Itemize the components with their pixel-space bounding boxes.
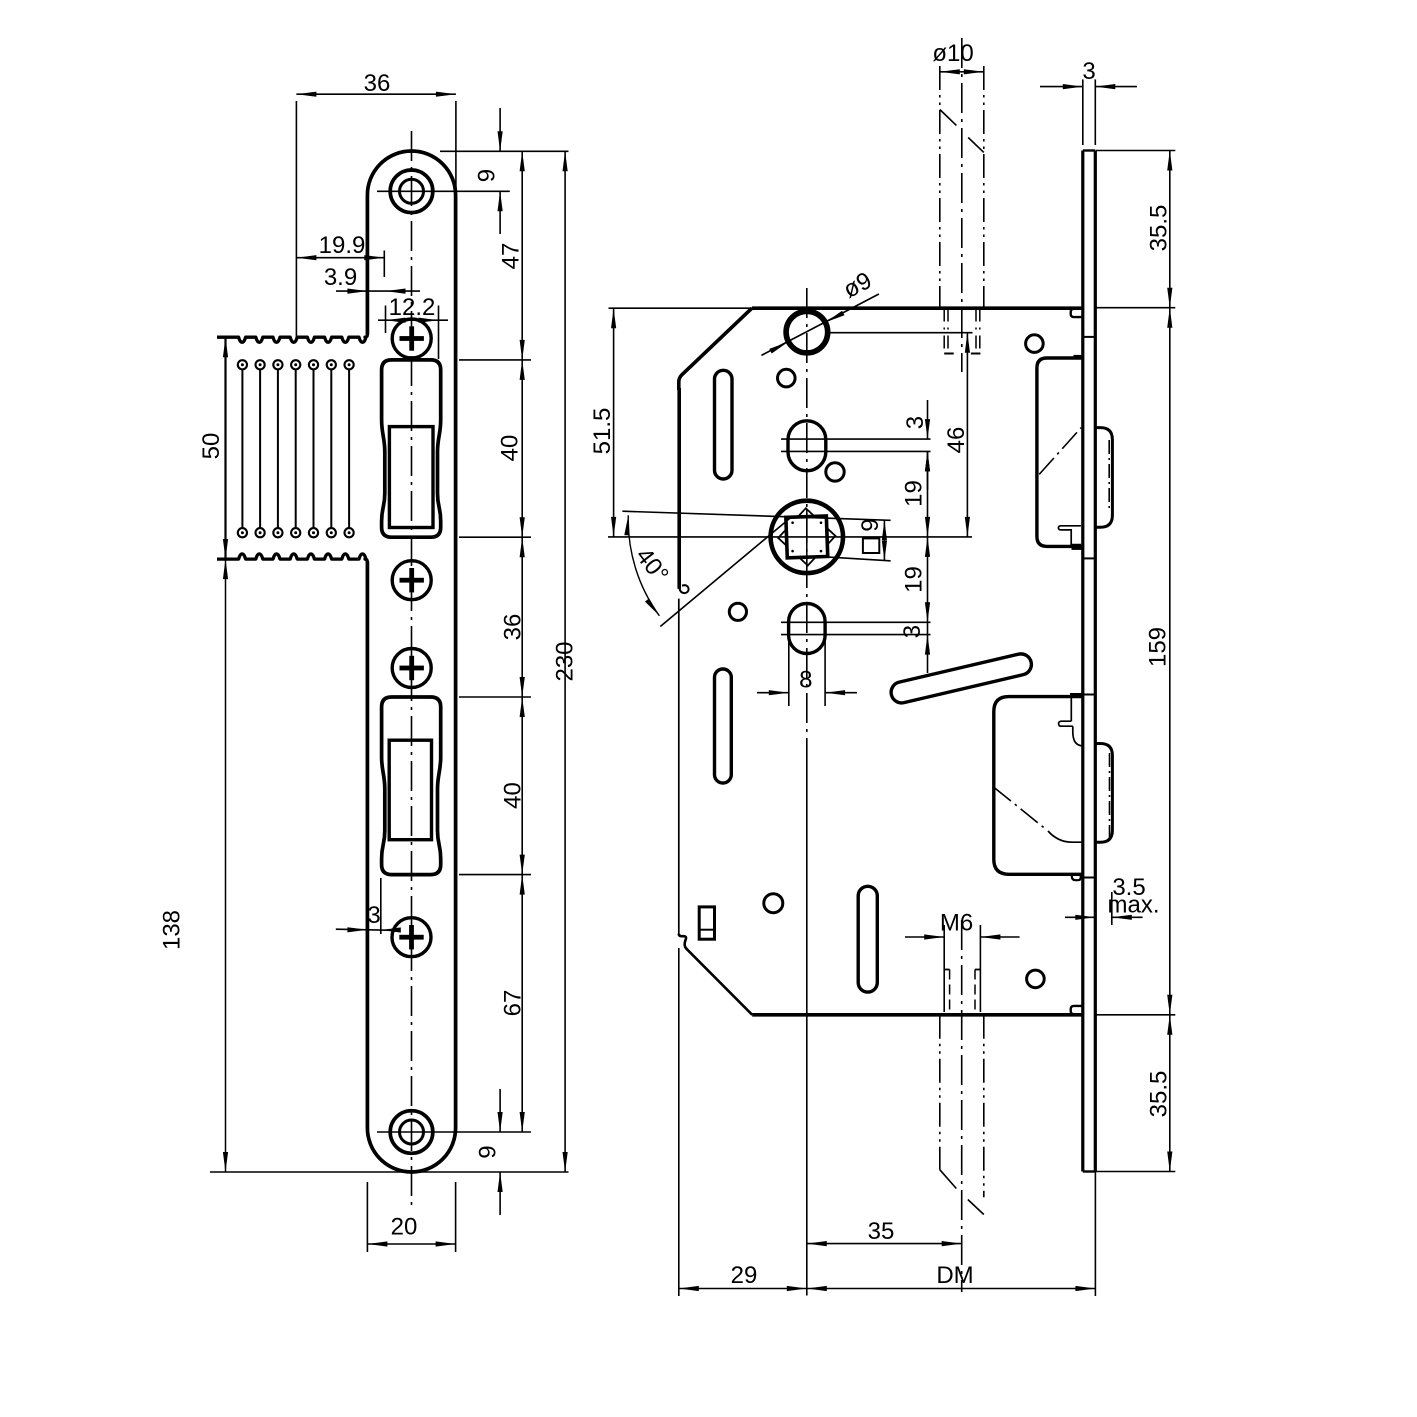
svg-text:9: 9 <box>474 169 501 182</box>
svg-text:138: 138 <box>159 910 186 950</box>
svg-text:47: 47 <box>498 243 525 270</box>
svg-text:159: 159 <box>1145 627 1172 667</box>
svg-text:40: 40 <box>500 782 527 809</box>
svg-text:50: 50 <box>198 433 225 460</box>
svg-text:DM: DM <box>936 1262 973 1289</box>
svg-text:35.5: 35.5 <box>1146 1071 1173 1118</box>
svg-text:9: 9 <box>857 518 884 531</box>
svg-text:36: 36 <box>364 70 391 97</box>
svg-text:19.9: 19.9 <box>319 232 366 259</box>
svg-text:51.5: 51.5 <box>589 408 616 455</box>
svg-text:3: 3 <box>1082 58 1095 85</box>
svg-text:8: 8 <box>799 667 812 694</box>
svg-text:max.: max. <box>1107 892 1159 919</box>
svg-text:35.5: 35.5 <box>1146 205 1173 252</box>
svg-text:230: 230 <box>552 641 579 681</box>
svg-text:12.2: 12.2 <box>389 294 436 321</box>
svg-text:3.9: 3.9 <box>324 264 357 291</box>
svg-text:40: 40 <box>497 435 524 462</box>
svg-text:35: 35 <box>868 1218 895 1245</box>
svg-text:3: 3 <box>902 416 929 429</box>
svg-text:46: 46 <box>943 427 970 454</box>
svg-text:67: 67 <box>500 990 527 1017</box>
svg-text:ø10: ø10 <box>932 40 973 67</box>
svg-text:3: 3 <box>367 902 380 929</box>
svg-text:M6: M6 <box>940 910 973 937</box>
svg-text:19: 19 <box>901 480 928 507</box>
svg-text:19: 19 <box>901 566 928 593</box>
svg-text:36: 36 <box>500 614 527 641</box>
svg-text:29: 29 <box>731 1262 758 1289</box>
svg-text:9: 9 <box>475 1145 502 1158</box>
svg-text:20: 20 <box>391 1214 418 1241</box>
svg-text:3: 3 <box>899 625 926 638</box>
